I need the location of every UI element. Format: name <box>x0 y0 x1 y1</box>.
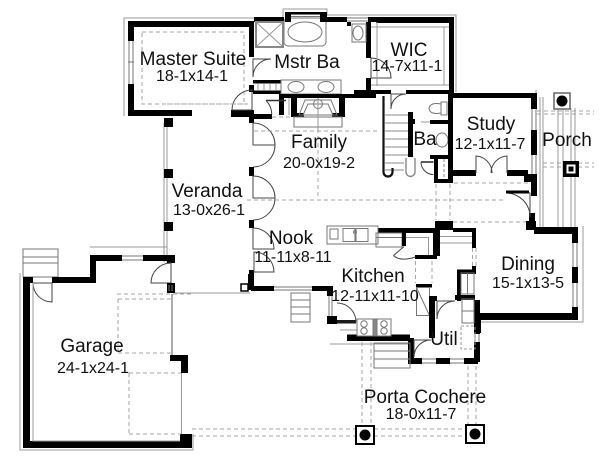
svg-text:13-0x26-1: 13-0x26-1 <box>173 202 245 219</box>
svg-text:12-1x11-7: 12-1x11-7 <box>455 136 526 153</box>
svg-text:Mstr Ba: Mstr Ba <box>274 52 340 73</box>
svg-text:11-11x8-11: 11-11x8-11 <box>254 249 331 266</box>
svg-text:24-1x24-1: 24-1x24-1 <box>57 360 129 377</box>
svg-text:Kitchen: Kitchen <box>341 266 404 287</box>
svg-text:20-0x19-2: 20-0x19-2 <box>283 155 355 172</box>
svg-text:Ba: Ba <box>413 129 437 150</box>
svg-text:Family: Family <box>291 132 347 153</box>
svg-text:Veranda: Veranda <box>172 181 243 202</box>
svg-text:Study: Study <box>467 114 516 135</box>
svg-text:14-7x11-1: 14-7x11-1 <box>372 58 443 75</box>
svg-text:Garage: Garage <box>60 336 123 357</box>
svg-text:Util: Util <box>430 329 457 350</box>
svg-text:18-0x11-7: 18-0x11-7 <box>386 406 457 423</box>
svg-text:18-1x14-1: 18-1x14-1 <box>156 68 228 85</box>
svg-text:12-11x11-10: 12-11x11-10 <box>331 288 419 305</box>
svg-text:Nook: Nook <box>269 228 314 249</box>
svg-text:Porch: Porch <box>542 130 592 151</box>
svg-text:Porta Cochere: Porta Cochere <box>364 387 487 408</box>
svg-text:Master Suite: Master Suite <box>140 49 247 70</box>
svg-text:Dining: Dining <box>501 254 555 275</box>
svg-text:15-1x13-5: 15-1x13-5 <box>492 275 564 292</box>
